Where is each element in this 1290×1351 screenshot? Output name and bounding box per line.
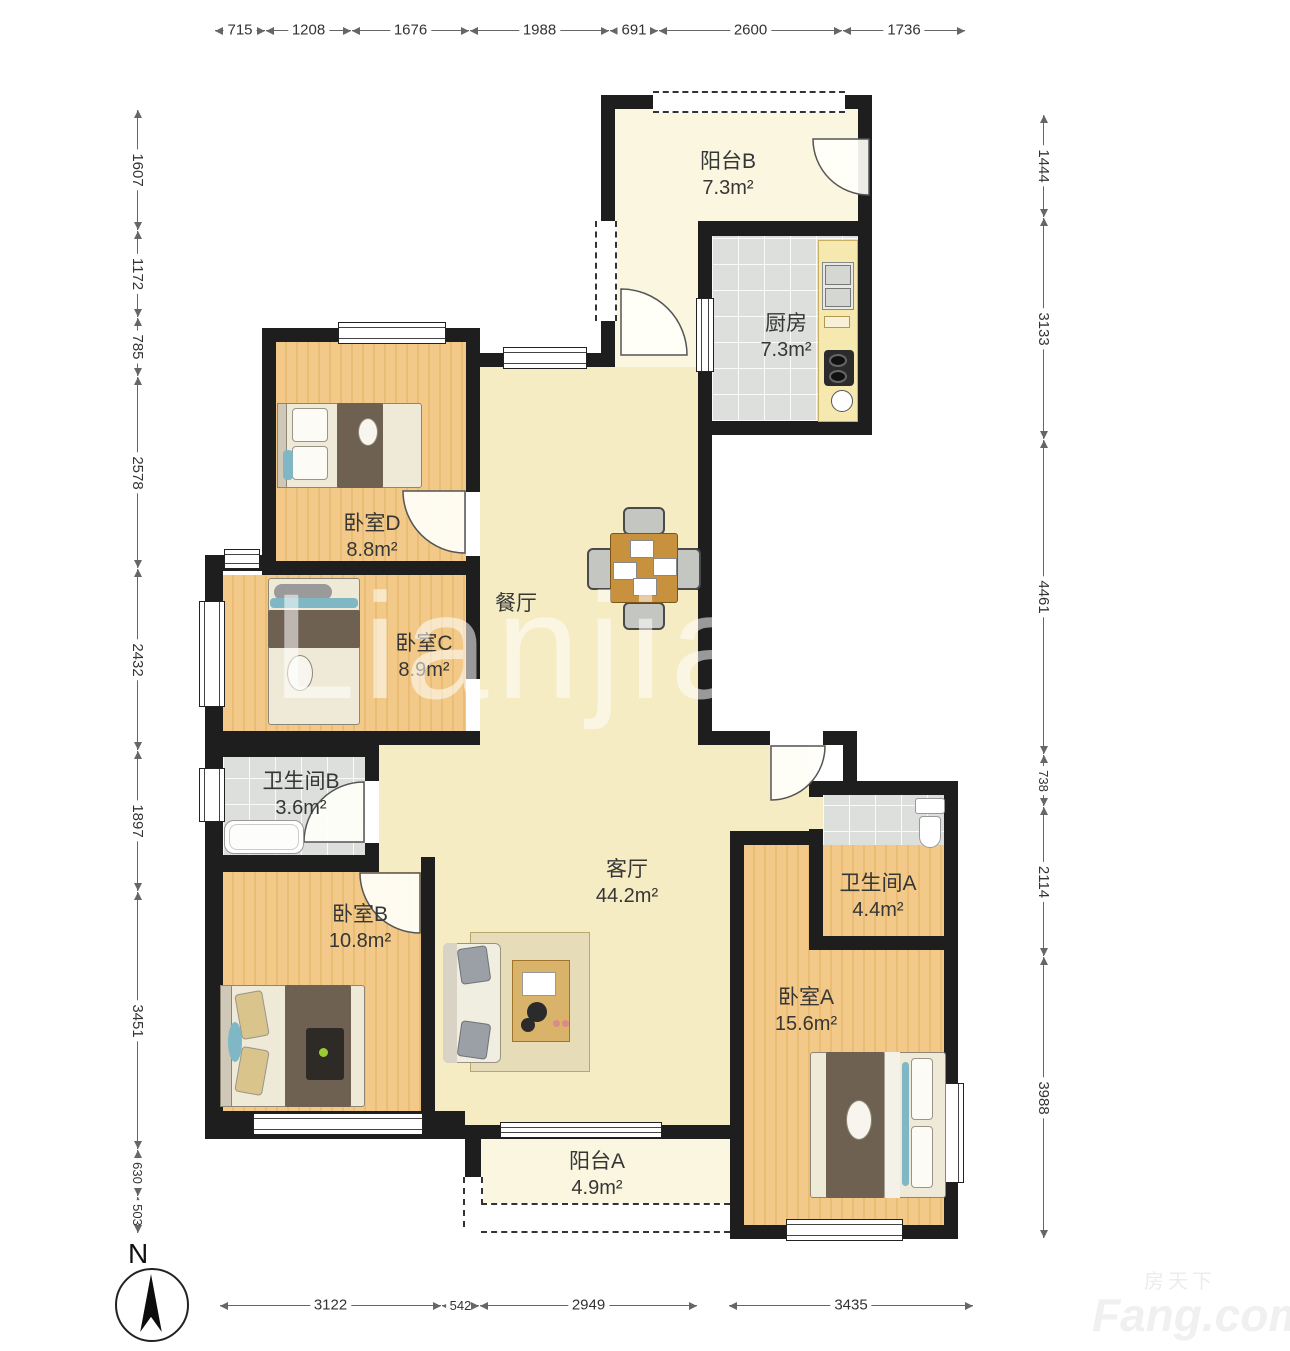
sofa-back bbox=[443, 943, 457, 1063]
toilet-bowl bbox=[919, 816, 941, 848]
bed-sheet bbox=[884, 1052, 900, 1198]
dim-left-7: 3451 bbox=[137, 892, 138, 1149]
dining-chair bbox=[623, 602, 665, 630]
sliding-door bbox=[696, 298, 714, 372]
dining-chair bbox=[623, 507, 665, 535]
bed-blanket bbox=[337, 403, 383, 488]
window bbox=[786, 1219, 903, 1241]
cutting-board bbox=[824, 316, 850, 328]
dim-left-3: 785 bbox=[137, 318, 138, 376]
dim-top-7: 1736 bbox=[843, 30, 965, 31]
wall bbox=[466, 575, 480, 679]
kettle bbox=[521, 1018, 535, 1032]
wall bbox=[421, 857, 435, 1139]
room-label-bedroom-d: 卧室D8.8m² bbox=[343, 510, 400, 563]
sink-basin bbox=[825, 288, 851, 307]
pillow bbox=[292, 446, 328, 480]
floor-plan: 715 1208 1676 1988 691 2600 1736 1607 11… bbox=[0, 0, 1290, 1351]
wall bbox=[698, 221, 858, 236]
door-arc-hall bbox=[770, 745, 826, 801]
window bbox=[199, 768, 225, 822]
dim-top-5: 691 bbox=[610, 30, 658, 31]
wall bbox=[262, 328, 276, 575]
room-label-balcony-a: 阳台A4.9m² bbox=[569, 1148, 625, 1201]
wall bbox=[205, 855, 379, 872]
room-label-bath-b: 卫生间B3.6m² bbox=[262, 768, 339, 821]
bed-accent bbox=[902, 1062, 909, 1186]
dim-right-5: 2114 bbox=[1043, 807, 1044, 956]
wall bbox=[365, 757, 379, 781]
burner bbox=[829, 354, 847, 367]
wall bbox=[205, 731, 379, 757]
window bbox=[338, 322, 446, 344]
wall bbox=[730, 831, 744, 1239]
compass-north-label: N bbox=[128, 1238, 148, 1270]
room-label-balcony-b: 阳台B7.3m² bbox=[700, 148, 756, 201]
dim-left-4: 2578 bbox=[137, 377, 138, 568]
balcony-window-dashed bbox=[653, 91, 845, 113]
dim-bottom-2: 542 bbox=[442, 1305, 479, 1306]
decor-dot bbox=[562, 1020, 569, 1027]
stove-knob bbox=[831, 390, 853, 412]
dim-left-5: 2432 bbox=[137, 569, 138, 750]
balcony-window-dashed bbox=[463, 1177, 483, 1227]
bed-tray-dot bbox=[319, 1048, 328, 1057]
watermark-fang: 房天下 Fang.com bbox=[1092, 1272, 1290, 1338]
room-label-bedroom-c: 卧室C8.9m² bbox=[395, 630, 452, 683]
wall bbox=[809, 829, 823, 950]
bed-blanket bbox=[268, 610, 360, 648]
dim-right-6: 3988 bbox=[1043, 957, 1044, 1238]
dim-left-9: 503 bbox=[137, 1197, 138, 1233]
wall bbox=[262, 561, 480, 575]
wall bbox=[809, 936, 958, 950]
wall bbox=[698, 421, 872, 435]
dim-left-6: 1897 bbox=[137, 751, 138, 891]
watermark-fang-en: Fang.com bbox=[1092, 1292, 1290, 1338]
window bbox=[253, 1113, 423, 1135]
wall bbox=[698, 731, 770, 745]
dim-left-1: 1607 bbox=[137, 110, 138, 230]
room-label-living: 客厅44.2m² bbox=[596, 856, 658, 909]
dim-top-1: 715 bbox=[215, 30, 265, 31]
room-label-bedroom-a: 卧室A15.6m² bbox=[775, 984, 837, 1037]
balcony-window-dashed bbox=[595, 221, 617, 321]
dim-top-2: 1208 bbox=[266, 30, 351, 31]
window bbox=[199, 601, 225, 707]
door-arc-bedroom-d bbox=[402, 490, 466, 554]
bathtub-inner bbox=[229, 824, 299, 850]
door-arc-entry bbox=[812, 138, 870, 196]
dim-left-8: 630 bbox=[137, 1150, 138, 1196]
plate bbox=[633, 578, 657, 596]
window bbox=[503, 347, 587, 369]
wall bbox=[465, 1125, 481, 1179]
wall bbox=[365, 731, 480, 745]
window bbox=[500, 1122, 662, 1138]
dim-right-2: 3133 bbox=[1043, 218, 1044, 439]
bed-lamp bbox=[287, 655, 313, 691]
sink-basin bbox=[825, 265, 851, 285]
sofa-pillow bbox=[457, 1020, 492, 1060]
burner bbox=[829, 370, 847, 383]
room-label-kitchen: 厨房7.3m² bbox=[760, 310, 811, 363]
dim-right-1: 1444 bbox=[1043, 115, 1044, 217]
room-label-bedroom-b: 卧室B10.8m² bbox=[329, 901, 391, 954]
decor-dot bbox=[553, 1020, 560, 1027]
dim-left-2: 1172 bbox=[137, 231, 138, 317]
dim-bottom-3: 2949 bbox=[480, 1305, 697, 1306]
tray bbox=[522, 972, 556, 996]
bed-accent bbox=[228, 1022, 242, 1062]
dim-top-6: 2600 bbox=[659, 30, 842, 31]
dim-right-3: 4461 bbox=[1043, 440, 1044, 754]
plate bbox=[630, 540, 654, 558]
dim-right-4: 738 bbox=[1043, 755, 1044, 806]
balcony-open-edge bbox=[481, 1203, 730, 1233]
pillow bbox=[911, 1058, 933, 1120]
wall bbox=[809, 781, 958, 795]
pillow bbox=[292, 408, 328, 442]
room-label-dining: 餐厅 bbox=[495, 590, 537, 617]
room-label-bath-a: 卫生间A4.4m² bbox=[839, 870, 916, 923]
toilet-tank bbox=[915, 798, 945, 814]
dim-bottom-1: 3122 bbox=[220, 1305, 441, 1306]
bed-lamp bbox=[846, 1100, 872, 1140]
dim-top-3: 1676 bbox=[352, 30, 469, 31]
sofa-pillow bbox=[457, 945, 492, 985]
pillow bbox=[911, 1126, 933, 1188]
dim-top-4: 1988 bbox=[470, 30, 609, 31]
plate bbox=[653, 558, 677, 576]
bed-accent bbox=[270, 598, 358, 608]
wall bbox=[466, 328, 480, 492]
bath-a-door-gap bbox=[809, 797, 823, 829]
bed-lamp bbox=[358, 418, 378, 446]
bed-accent bbox=[283, 450, 293, 480]
door-arc-balcony-b bbox=[620, 288, 688, 356]
dim-bottom-4: 3435 bbox=[729, 1305, 973, 1306]
window bbox=[224, 549, 260, 569]
wall bbox=[843, 731, 857, 795]
